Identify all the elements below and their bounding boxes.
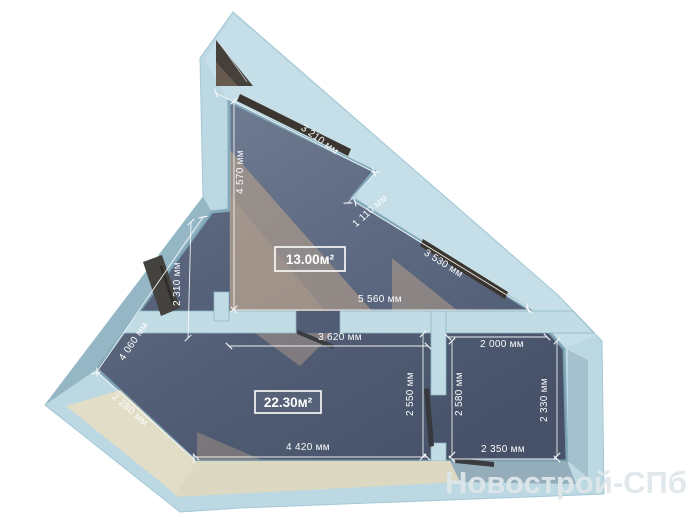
- dimension-label: 2 580 мм: [454, 372, 465, 416]
- watermark-text: Новострой-СПб: [445, 465, 687, 500]
- shaded-face-right: [568, 350, 588, 478]
- dimension-label: 3 620 мм: [318, 332, 362, 343]
- dimension-label: 5 560 мм: [358, 294, 402, 305]
- dimension-label: 4 420 мм: [286, 442, 330, 453]
- dimension-label: 4 570 мм: [235, 150, 246, 194]
- room-area-label: 22.30м²: [264, 395, 313, 410]
- wall-divider-upper: [431, 311, 446, 395]
- dimension-label: 2 350 мм: [481, 444, 525, 455]
- wall-horizontal-left: [123, 311, 296, 333]
- room-area-label: 13.00м²: [286, 252, 335, 267]
- dimension-label: 2 330 мм: [539, 378, 550, 422]
- dimension-label: 2 000 мм: [480, 339, 524, 350]
- dimension-label: 2 310 мм: [172, 262, 183, 306]
- floor-plan-render: 3 210 мм4 570 мм1 110 мм3 530 мм5 560 мм…: [0, 0, 700, 525]
- dimension-label: 2 550 мм: [405, 372, 416, 416]
- wall-horizontal-right: [340, 311, 594, 333]
- wall-stub-hallway: [214, 292, 229, 321]
